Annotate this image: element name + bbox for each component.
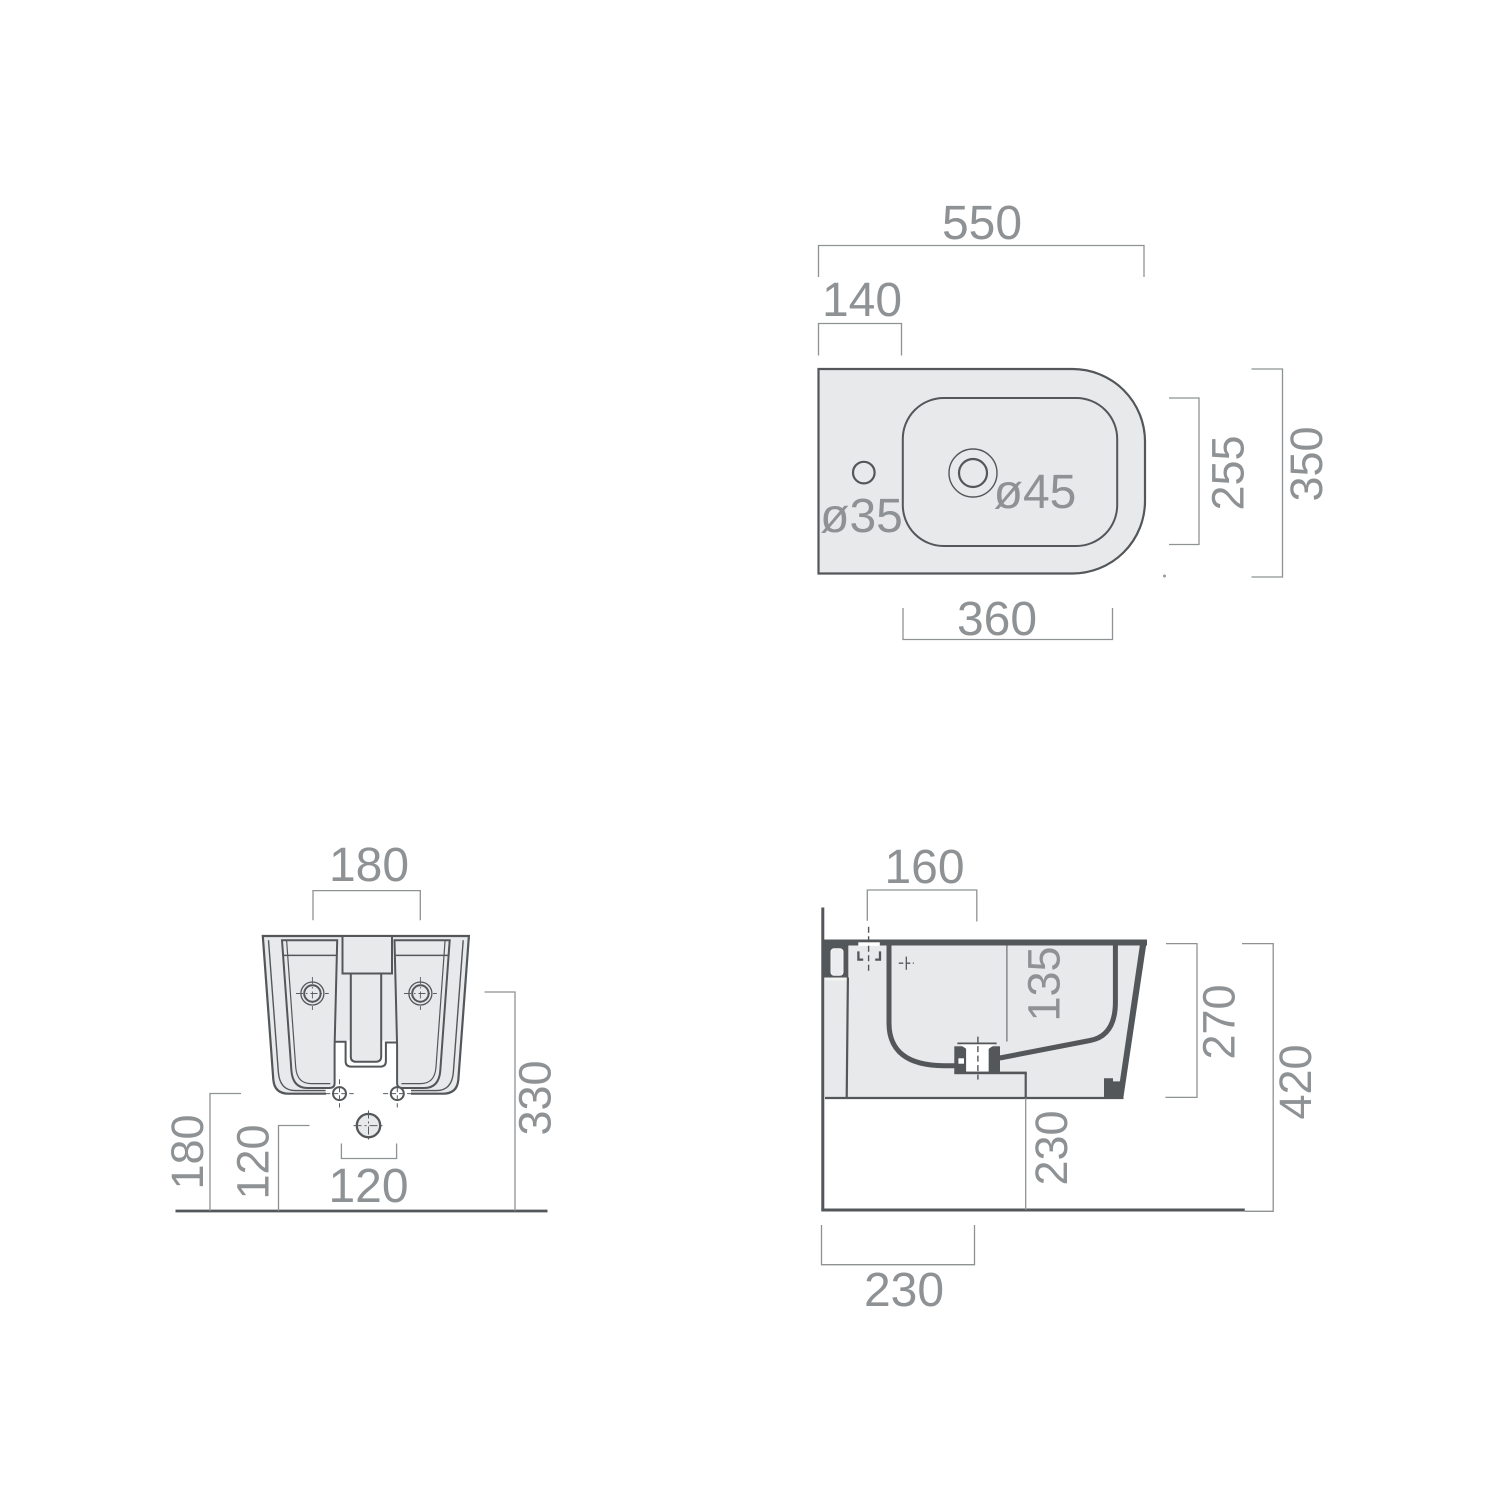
- svg-text:270: 270: [1194, 984, 1245, 1059]
- svg-text:350: 350: [1281, 426, 1332, 501]
- svg-text:135: 135: [1019, 946, 1070, 1021]
- svg-text:360: 360: [957, 593, 1037, 646]
- svg-text:120: 120: [228, 1124, 279, 1199]
- svg-text:230: 230: [1026, 1110, 1077, 1185]
- svg-text:330: 330: [510, 1060, 561, 1135]
- svg-text:120: 120: [328, 1160, 408, 1213]
- svg-text:230: 230: [864, 1264, 944, 1317]
- svg-text:180: 180: [329, 839, 409, 892]
- svg-text:ø45: ø45: [994, 466, 1077, 519]
- svg-text:140: 140: [822, 274, 902, 327]
- svg-text:160: 160: [884, 841, 964, 894]
- svg-text:ø35: ø35: [820, 490, 903, 543]
- svg-text:550: 550: [942, 197, 1022, 250]
- svg-text:255: 255: [1203, 435, 1254, 510]
- svg-text:180: 180: [162, 1114, 213, 1189]
- svg-text:420: 420: [1270, 1044, 1321, 1119]
